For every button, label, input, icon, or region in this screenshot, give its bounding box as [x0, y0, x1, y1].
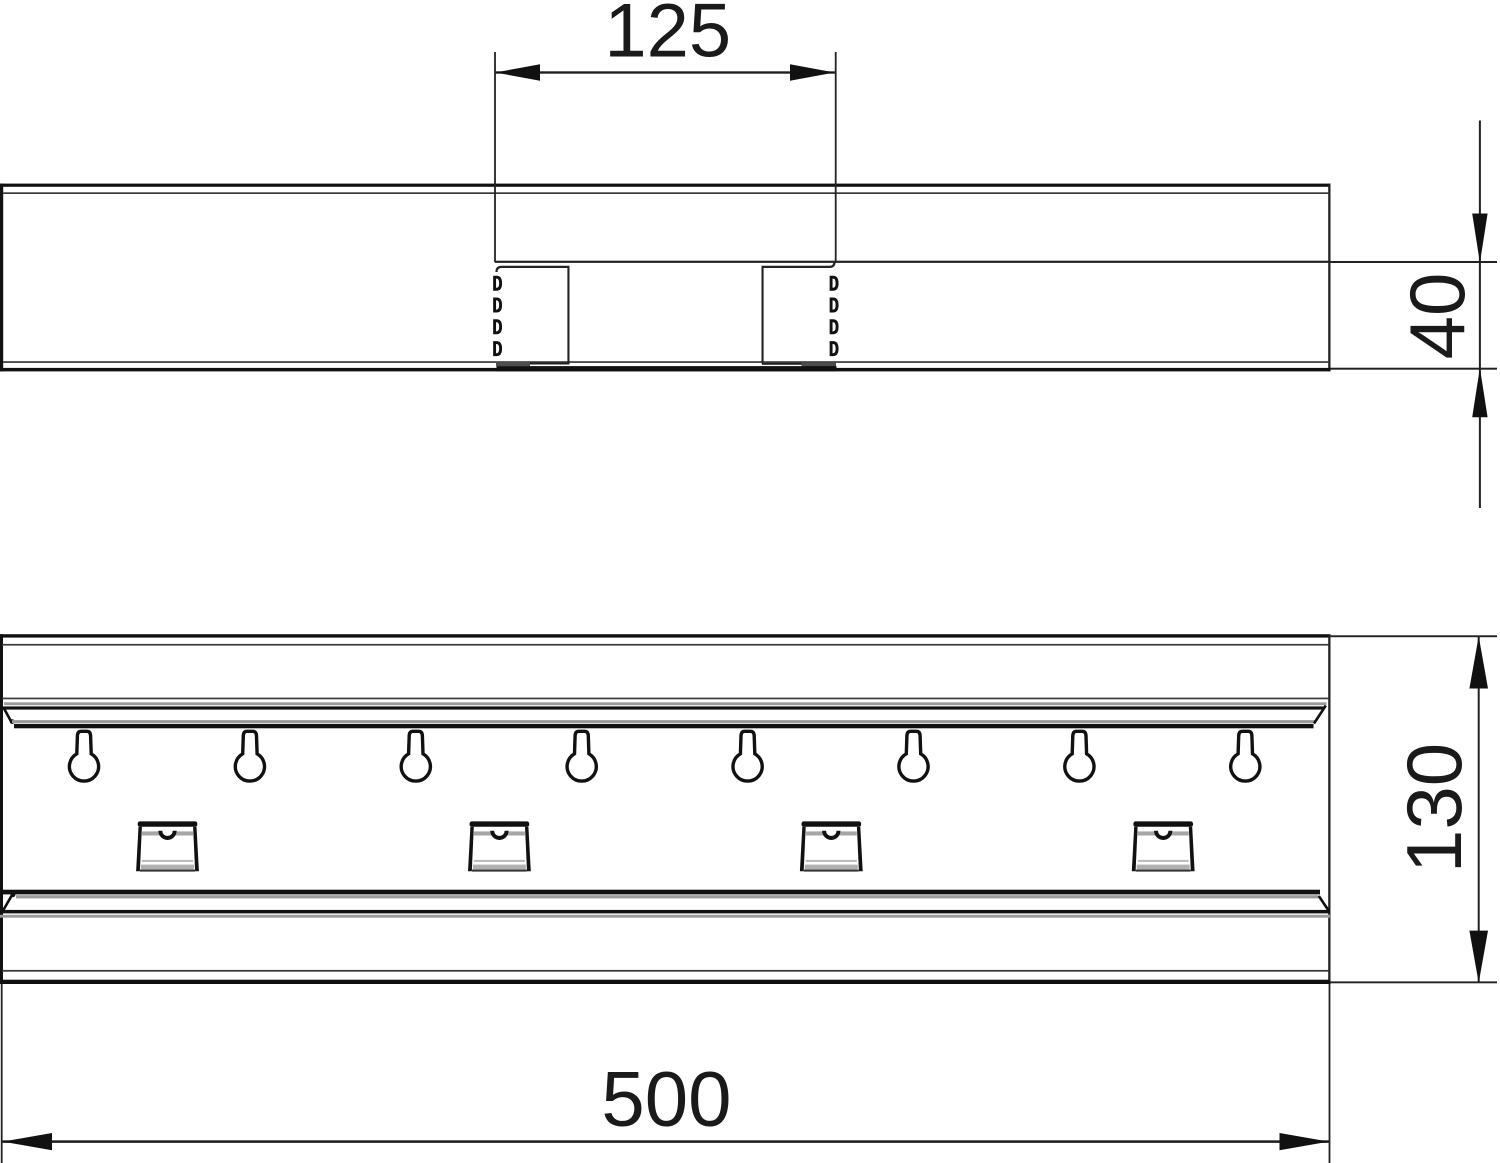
svg-text:40: 40 [1393, 273, 1481, 360]
svg-text:125: 125 [604, 0, 731, 74]
svg-text:500: 500 [601, 1055, 731, 1143]
svg-text:130: 130 [1390, 743, 1478, 873]
